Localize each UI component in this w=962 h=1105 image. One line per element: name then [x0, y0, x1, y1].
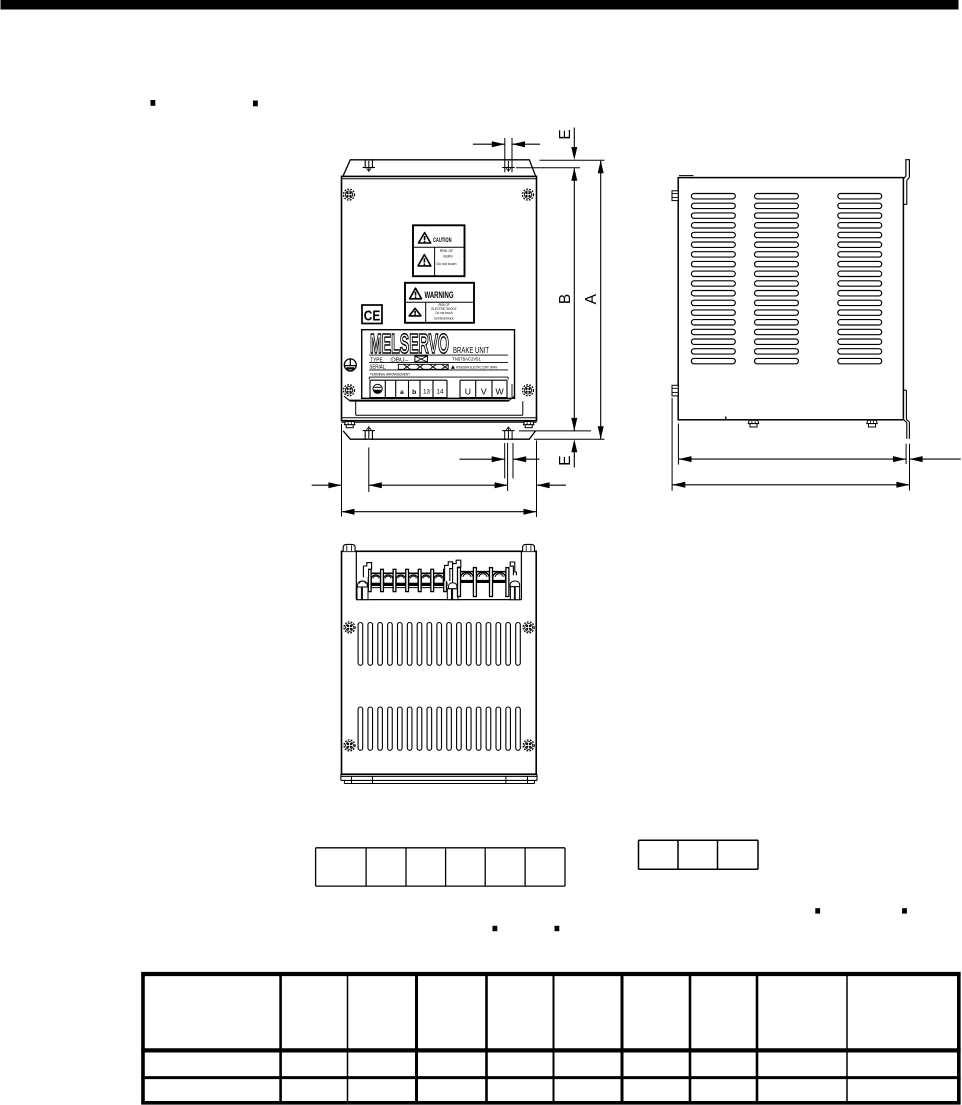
svg-text:a: a — [400, 389, 404, 396]
svg-text:Do not touch: Do not touch — [437, 262, 457, 266]
svg-text:b: b — [412, 389, 416, 396]
svg-text:14: 14 — [437, 389, 444, 396]
svg-text:TN57BAC2V51: TN57BAC2V51 — [452, 357, 481, 362]
svg-text:CAUTION: CAUTION — [433, 237, 452, 244]
svg-text:W: W — [495, 387, 504, 397]
svg-text:CE: CE — [364, 307, 381, 324]
svg-text:V: V — [481, 387, 487, 397]
svg-text:E: E — [557, 455, 574, 465]
svg-text:13: 13 — [423, 389, 430, 396]
svg-text:U: U — [465, 387, 471, 397]
svg-text:BURN: BURN — [444, 254, 453, 259]
svg-text:WARNING: WARNING — [425, 290, 454, 300]
svg-text:RISK OF: RISK OF — [440, 248, 453, 253]
svg-text:ELECTRIC SHOCK: ELECTRIC SHOCK — [432, 307, 458, 311]
svg-text:terminal block: terminal block — [435, 316, 454, 320]
svg-text:BRAKE UNIT: BRAKE UNIT — [453, 346, 489, 355]
svg-text:B: B — [557, 294, 574, 304]
svg-text:E: E — [557, 129, 574, 139]
svg-text:Do not touch: Do not touch — [436, 311, 453, 315]
svg-text:TERMINAL ARRANGEMENT: TERMINAL ARRANGEMENT — [370, 372, 411, 376]
svg-text:MITSUBISHI ELECTRIC CORP. JAPA: MITSUBISHI ELECTRIC CORP. JAPAN — [456, 365, 497, 369]
svg-text:A: A — [583, 293, 600, 304]
svg-text:MELSERVO: MELSERVO — [370, 328, 449, 359]
